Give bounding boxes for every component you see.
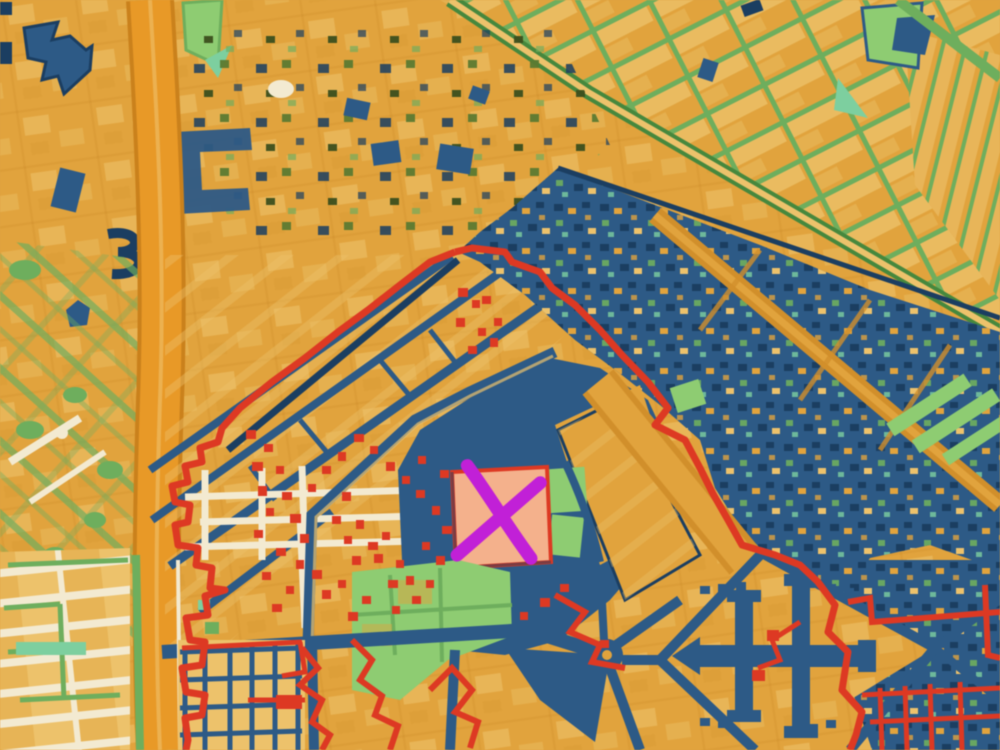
map-canvas[interactable] bbox=[0, 0, 1000, 750]
west-main-road bbox=[150, 0, 162, 750]
map-svg bbox=[0, 0, 1000, 750]
